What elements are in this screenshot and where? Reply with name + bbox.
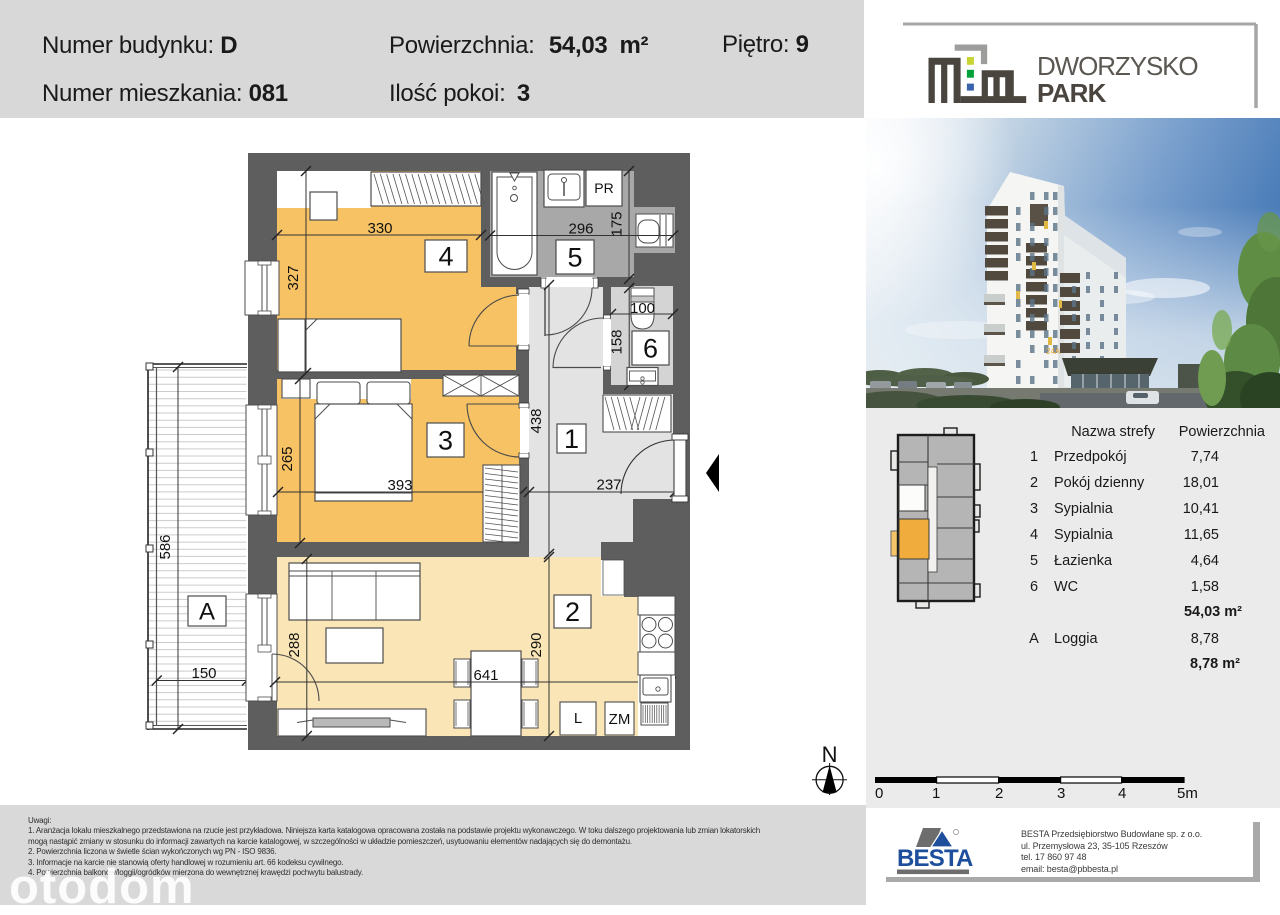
svg-text:393: 393 — [387, 477, 412, 494]
svg-text:6: 6 — [643, 334, 658, 364]
svg-text:150: 150 — [191, 665, 216, 682]
svg-text:290: 290 — [528, 632, 545, 657]
svg-text:586: 586 — [157, 534, 174, 559]
svg-text:5m: 5m — [1177, 785, 1198, 802]
svg-text:ZM: ZM — [609, 711, 631, 728]
svg-text:330: 330 — [367, 220, 392, 237]
svg-text:A: A — [199, 599, 215, 626]
svg-text:4: 4 — [438, 242, 453, 272]
svg-text:237: 237 — [596, 477, 621, 494]
svg-text:5: 5 — [567, 243, 582, 273]
svg-text:0: 0 — [875, 785, 883, 802]
svg-text:288: 288 — [286, 632, 303, 657]
svg-text:296: 296 — [568, 221, 593, 238]
svg-text:2: 2 — [565, 597, 580, 627]
svg-text:BESTA: BESTA — [897, 845, 973, 872]
svg-text:158: 158 — [609, 329, 626, 354]
svg-text:1: 1 — [932, 785, 940, 802]
svg-text:2: 2 — [995, 785, 1003, 802]
svg-text:PR: PR — [594, 180, 613, 196]
svg-text:438: 438 — [528, 408, 545, 433]
svg-text:100: 100 — [630, 300, 655, 317]
svg-text:641: 641 — [473, 667, 498, 684]
svg-text:L: L — [574, 710, 582, 727]
svg-text:3: 3 — [1057, 785, 1065, 802]
svg-text:265: 265 — [279, 446, 296, 471]
svg-text:175: 175 — [609, 211, 626, 236]
svg-text:4: 4 — [1118, 785, 1126, 802]
svg-text:1: 1 — [564, 424, 579, 454]
svg-text:3: 3 — [438, 426, 453, 456]
svg-text:327: 327 — [285, 265, 302, 290]
